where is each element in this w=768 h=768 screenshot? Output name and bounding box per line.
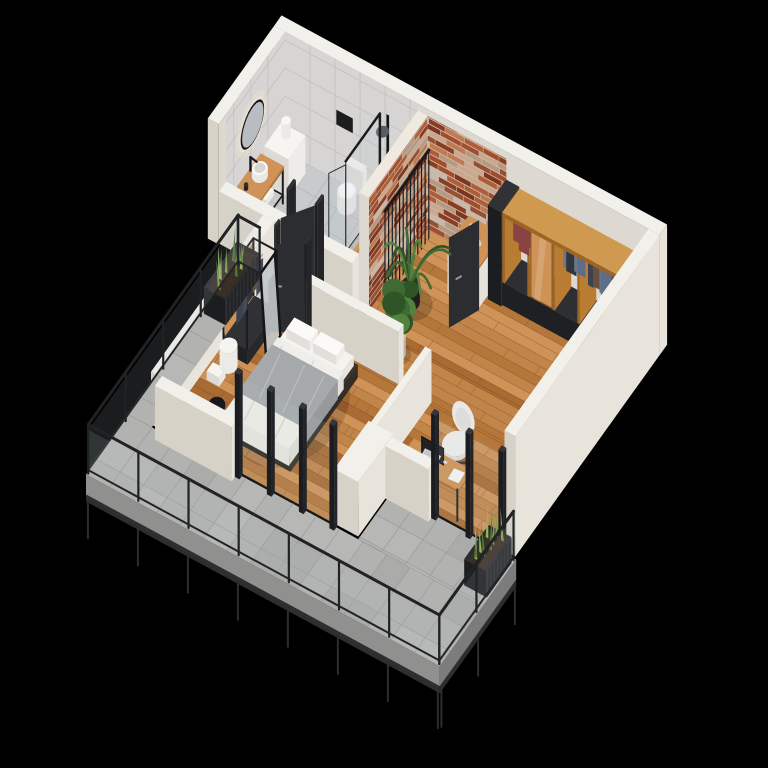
glazing-post-3 — [299, 402, 307, 514]
scene-canvas — [0, 0, 768, 768]
glazing-post-1 — [235, 368, 243, 480]
vanity-cup — [244, 182, 248, 191]
glazing-post-2 — [267, 385, 275, 497]
glazing-post-4 — [329, 419, 337, 531]
bathroom-vase — [281, 116, 291, 139]
glazing-post-6 — [466, 427, 474, 539]
glazing-post-5 — [431, 409, 439, 521]
bedroom-door-jamb-right — [304, 236, 311, 335]
laundry-basket — [220, 338, 238, 374]
entry-door — [449, 220, 479, 328]
apartment-3d-floorplan — [0, 0, 768, 768]
